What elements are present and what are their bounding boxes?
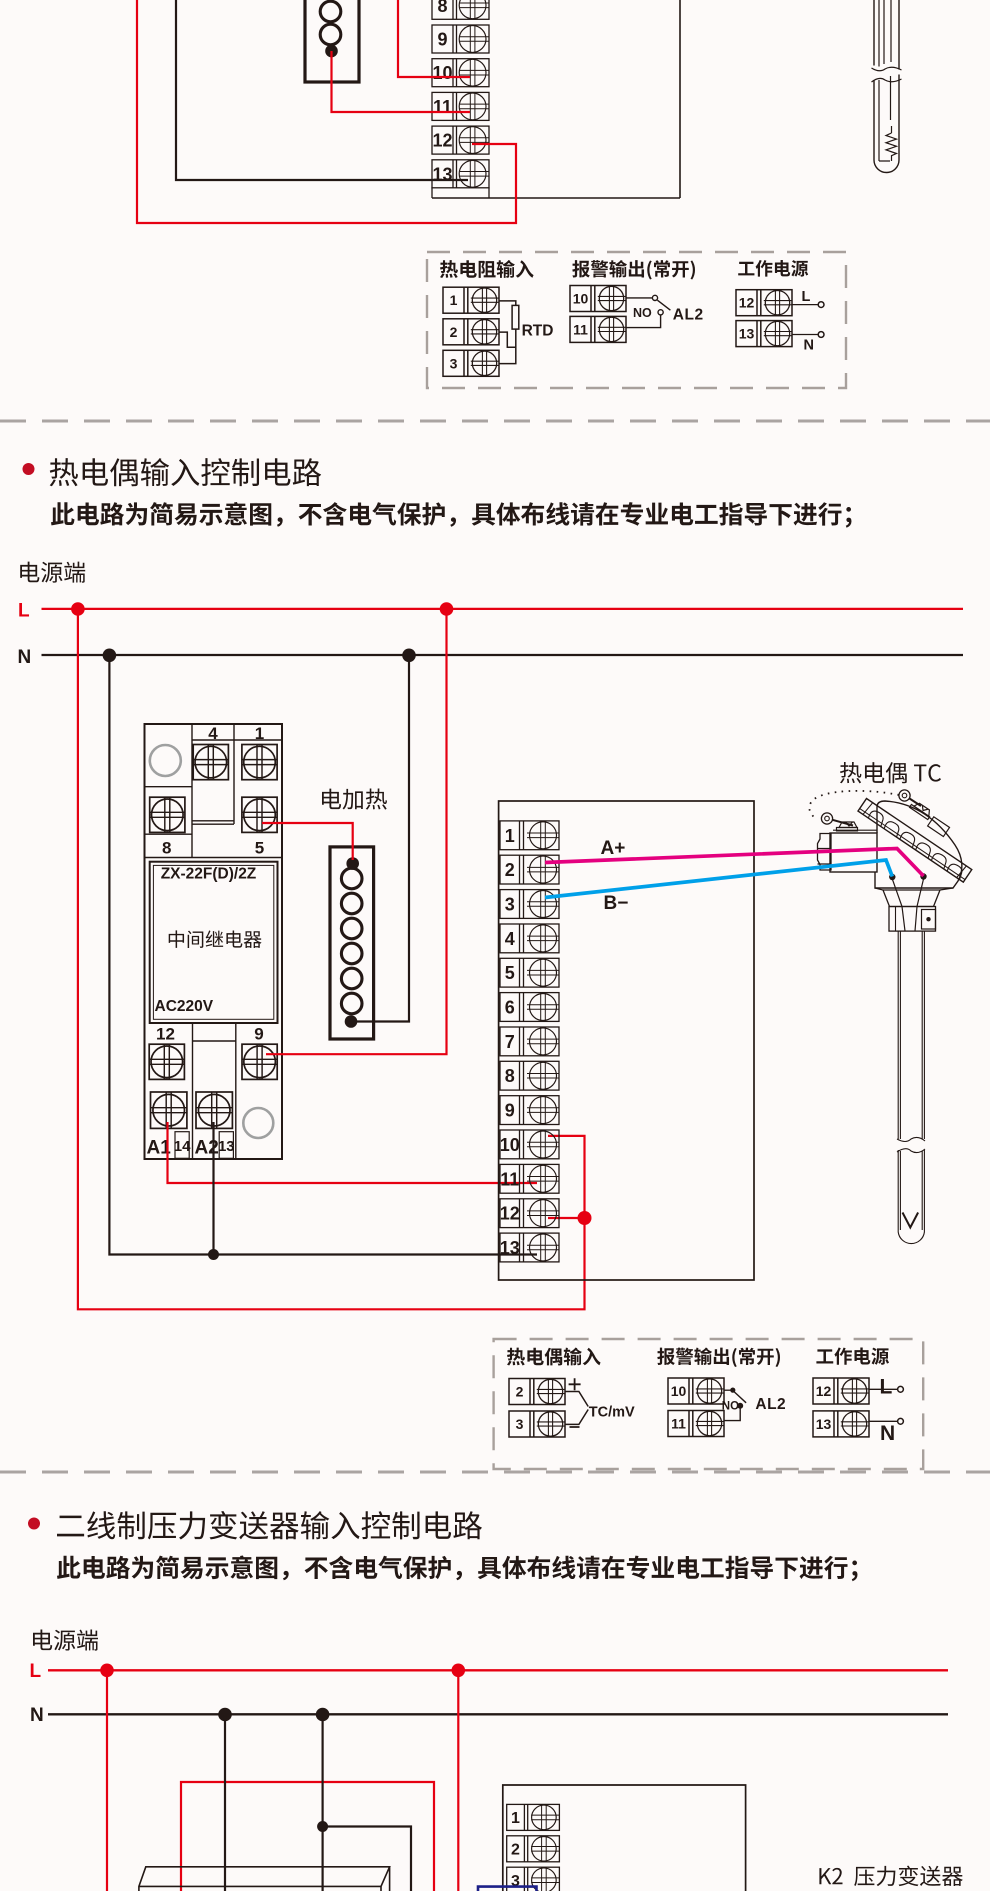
- svg-text:12: 12: [156, 1025, 175, 1044]
- svg-text:2: 2: [450, 324, 458, 340]
- svg-text:RTD: RTD: [522, 322, 554, 339]
- svg-text:13: 13: [432, 164, 452, 184]
- svg-text:9: 9: [505, 1101, 515, 1121]
- svg-text:10: 10: [500, 1135, 520, 1155]
- svg-text:12: 12: [432, 131, 452, 151]
- svg-text:13: 13: [218, 1138, 235, 1155]
- svg-text:1: 1: [255, 724, 264, 743]
- svg-text:L: L: [880, 1375, 893, 1398]
- svg-text:2: 2: [516, 1384, 524, 1400]
- svg-text:4: 4: [505, 929, 515, 949]
- svg-text:N: N: [30, 1705, 44, 1726]
- svg-text:12: 12: [739, 295, 755, 311]
- svg-text:13: 13: [739, 326, 755, 342]
- svg-text:5: 5: [255, 839, 264, 858]
- svg-text:TC/mV: TC/mV: [589, 1405, 635, 1421]
- svg-text:AL2: AL2: [755, 1396, 786, 1413]
- svg-text:10: 10: [432, 63, 452, 83]
- svg-text:9: 9: [254, 1025, 263, 1044]
- svg-text:2: 2: [505, 860, 515, 880]
- svg-text:11: 11: [433, 97, 452, 117]
- svg-text:10: 10: [671, 1383, 687, 1399]
- svg-text:10: 10: [573, 291, 589, 307]
- svg-text:12: 12: [500, 1204, 520, 1224]
- svg-text:N: N: [804, 337, 814, 353]
- svg-text:7: 7: [505, 1032, 515, 1052]
- svg-text:1: 1: [505, 826, 515, 846]
- svg-text:8: 8: [505, 1066, 515, 1086]
- svg-text:11: 11: [671, 1416, 686, 1432]
- svg-text:NO: NO: [633, 306, 652, 320]
- svg-text:1: 1: [511, 1810, 520, 1827]
- svg-text:N: N: [18, 647, 32, 668]
- svg-text:L: L: [30, 1661, 42, 1682]
- svg-text:13: 13: [500, 1238, 520, 1258]
- svg-text:3: 3: [505, 895, 515, 915]
- svg-text:1: 1: [450, 292, 458, 308]
- svg-text:3: 3: [450, 355, 458, 371]
- svg-text:AL2: AL2: [673, 307, 704, 324]
- svg-text:6: 6: [505, 998, 515, 1018]
- svg-text:4: 4: [208, 724, 218, 743]
- svg-text:13: 13: [816, 1416, 832, 1432]
- svg-text:14: 14: [174, 1138, 191, 1155]
- svg-text:9: 9: [437, 30, 447, 50]
- svg-text:ZX-22F(D)/2Z: ZX-22F(D)/2Z: [161, 866, 257, 883]
- svg-text:12: 12: [816, 1383, 832, 1399]
- svg-text:AC220V: AC220V: [155, 998, 214, 1015]
- svg-text:11: 11: [500, 1169, 519, 1189]
- svg-text:A2: A2: [195, 1137, 219, 1158]
- svg-text:A+: A+: [601, 838, 626, 859]
- svg-text:L: L: [18, 601, 30, 622]
- svg-text:8: 8: [437, 0, 447, 16]
- svg-text:3: 3: [516, 1416, 524, 1432]
- svg-text:NO: NO: [722, 1400, 739, 1412]
- svg-text:2: 2: [511, 1842, 520, 1859]
- svg-text:5: 5: [505, 963, 515, 983]
- svg-text:8: 8: [162, 839, 171, 858]
- svg-text:11: 11: [573, 321, 588, 337]
- svg-text:N: N: [880, 1422, 895, 1445]
- svg-text:B−: B−: [604, 893, 629, 914]
- svg-text:L: L: [802, 289, 811, 305]
